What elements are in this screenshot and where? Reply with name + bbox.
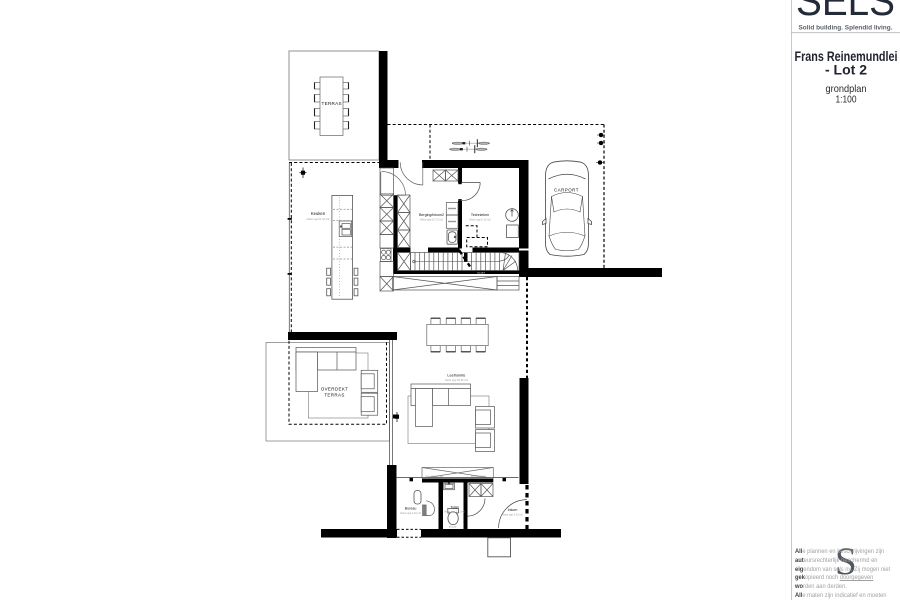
svg-text:Berging/inkom2: Berging/inkom2	[419, 213, 444, 217]
svg-text:16x18.8: 16x18.8	[477, 273, 486, 275]
svg-text:OVERDEKT: OVERDEKT	[321, 387, 349, 392]
svg-text:Inkom: Inkom	[508, 508, 518, 512]
svg-text:TERRAS: TERRAS	[321, 101, 341, 106]
svg-text:Netto opp 4.34 m2: Netto opp 4.34 m2	[400, 512, 421, 515]
svg-text:Keuken: Keuken	[311, 211, 326, 216]
svg-text:Netto opp 1.31 m2: Netto opp 1.31 m2	[444, 511, 465, 514]
svg-text:- Lot 2: - Lot 2	[825, 62, 867, 78]
svg-text:90x140: 90x140	[449, 527, 457, 529]
svg-text:Netto opp 10.72 m2: Netto opp 10.72 m2	[420, 218, 443, 222]
svg-text:Technieken: Technieken	[471, 213, 489, 217]
svg-text:CARPORT: CARPORT	[554, 188, 579, 193]
svg-text:TERRAS: TERRAS	[324, 393, 344, 398]
svg-text:1:100: 1:100	[836, 94, 857, 106]
svg-text:3700 SCHUIF 300: 3700 SCHUIF 300	[425, 476, 444, 478]
svg-text:Solid building. Splendid livin: Solid building. Splendid living.	[799, 25, 893, 32]
svg-text:Bureau: Bureau	[405, 507, 417, 511]
svg-text:Netto opp 5.33 m2: Netto opp 5.33 m2	[502, 513, 523, 516]
svg-text:300 VAST 3000: 300 VAST 3000	[471, 475, 487, 478]
svg-text:Netto opp 6.10 m2: Netto opp 6.10 m2	[469, 218, 491, 222]
svg-text:SELS: SELS	[796, 0, 895, 24]
svg-text:Netto opp 21.47 m2: Netto opp 21.47 m2	[307, 217, 330, 221]
svg-text:Netto opp 53.46 m2: Netto opp 53.46 m2	[445, 378, 468, 382]
svg-text:Toilet: Toilet	[450, 505, 458, 509]
svg-text:Leefruimte: Leefruimte	[447, 374, 465, 378]
